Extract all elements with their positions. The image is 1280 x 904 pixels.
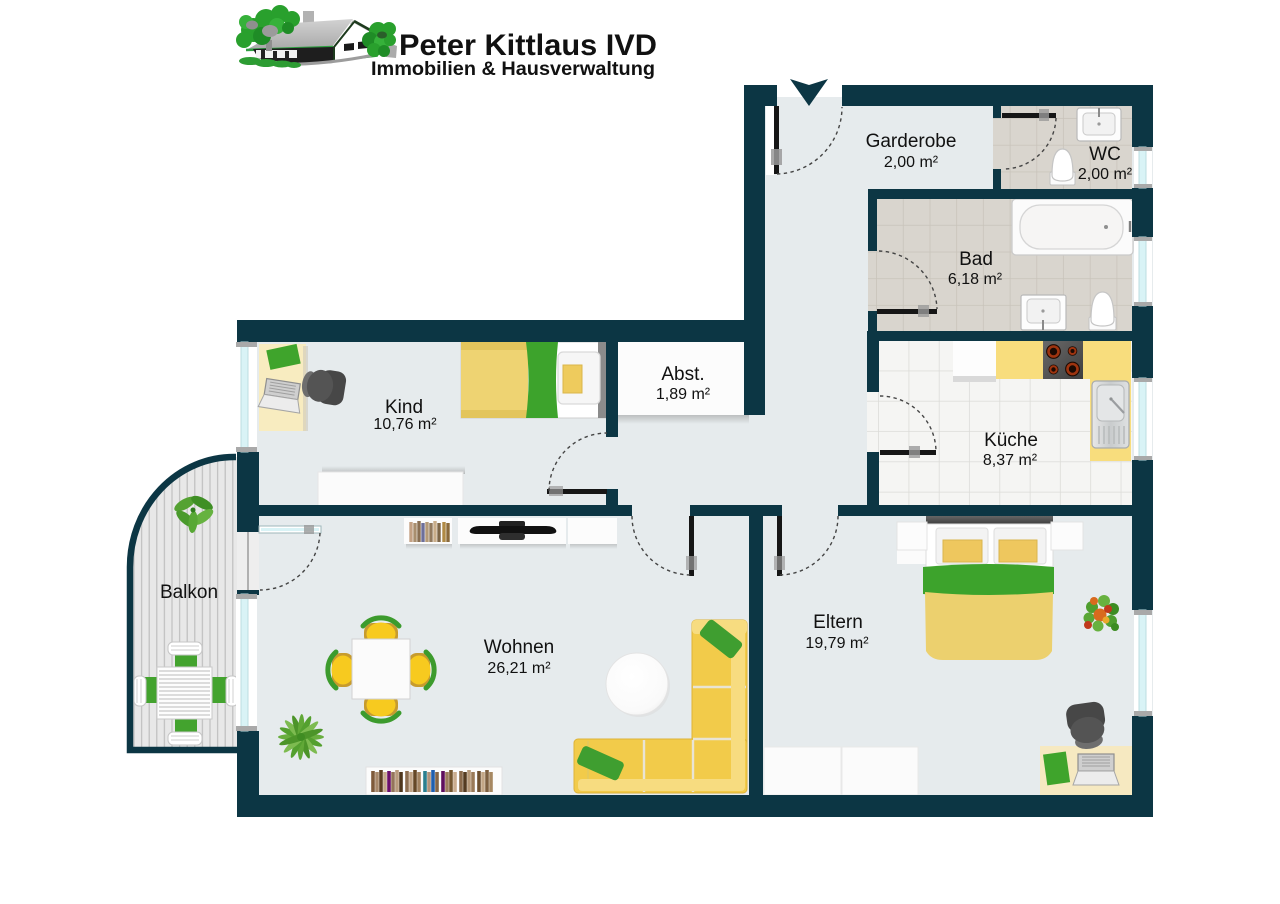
- svg-text:26,21 m²: 26,21 m²: [487, 660, 551, 677]
- svg-text:10,76 m²: 10,76 m²: [373, 416, 437, 433]
- svg-text:2,00 m²: 2,00 m²: [1078, 166, 1133, 183]
- svg-text:Wohnen: Wohnen: [484, 637, 554, 658]
- svg-text:Immobilien & Hausverwaltung: Immobilien & Hausverwaltung: [371, 59, 655, 80]
- svg-text:Bad: Bad: [959, 249, 993, 270]
- svg-text:Kind: Kind: [385, 397, 423, 418]
- svg-text:Küche: Küche: [984, 430, 1038, 451]
- svg-text:Garderobe: Garderobe: [866, 131, 957, 152]
- svg-text:Balkon: Balkon: [160, 582, 218, 603]
- svg-text:19,79 m²: 19,79 m²: [805, 635, 869, 652]
- svg-text:Abst.: Abst.: [661, 364, 704, 385]
- svg-text:Peter Kittlaus IVD: Peter Kittlaus IVD: [399, 29, 657, 62]
- svg-text:WC: WC: [1089, 144, 1121, 165]
- svg-text:2,00 m²: 2,00 m²: [884, 154, 939, 171]
- svg-text:Eltern: Eltern: [813, 612, 863, 633]
- svg-text:6,18 m²: 6,18 m²: [948, 271, 1003, 288]
- svg-text:8,37 m²: 8,37 m²: [983, 452, 1038, 469]
- svg-text:1,89 m²: 1,89 m²: [656, 386, 711, 403]
